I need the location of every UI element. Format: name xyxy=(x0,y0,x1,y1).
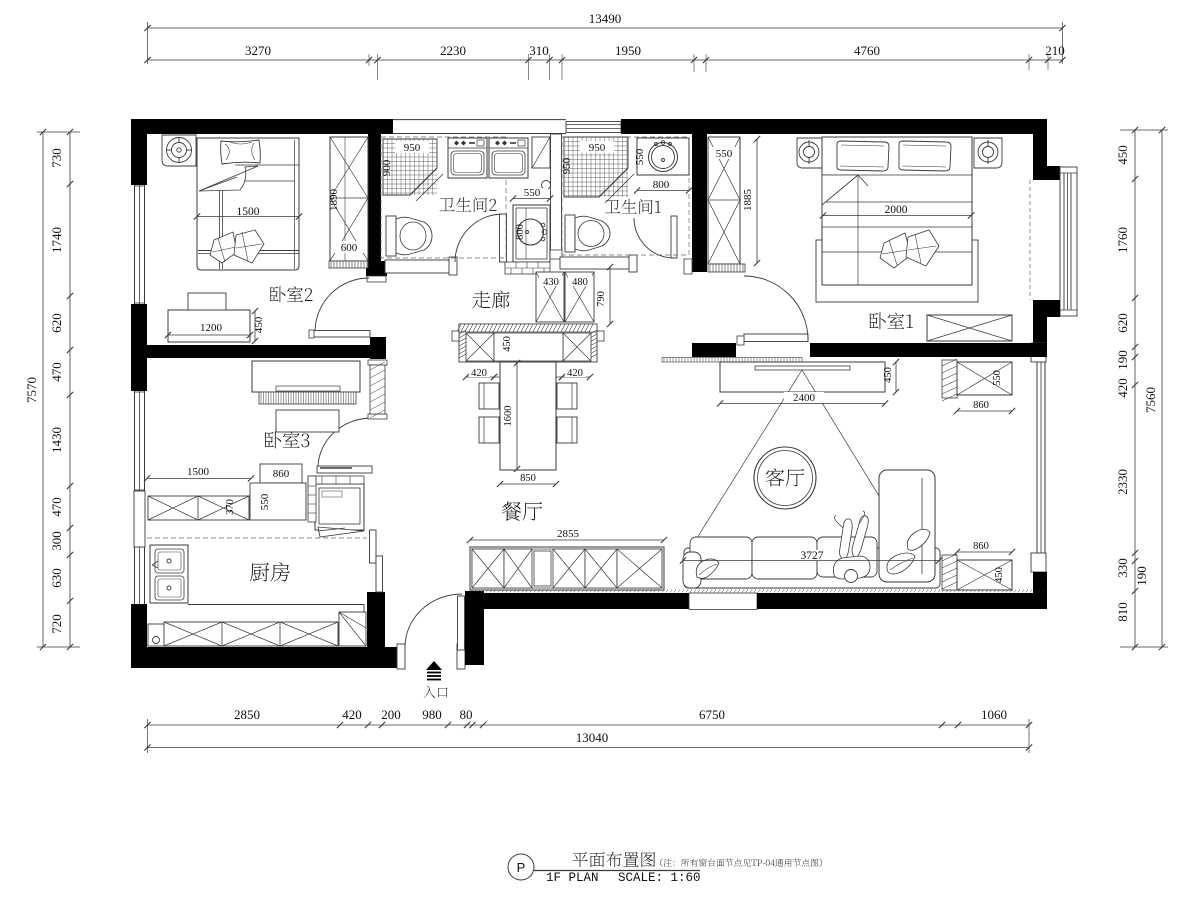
svg-text:600: 600 xyxy=(341,242,358,254)
svg-text:3270: 3270 xyxy=(245,43,271,58)
svg-text:1060: 1060 xyxy=(981,707,1007,722)
svg-text:2400: 2400 xyxy=(793,392,816,404)
svg-text:1890: 1890 xyxy=(328,189,340,212)
svg-text:1600: 1600 xyxy=(503,406,514,427)
svg-text:1740: 1740 xyxy=(49,227,64,253)
svg-text:980: 980 xyxy=(422,707,442,722)
svg-text:550: 550 xyxy=(716,148,733,160)
svg-text:1500: 1500 xyxy=(187,466,210,478)
svg-text:P: P xyxy=(517,860,526,875)
svg-text:13490: 13490 xyxy=(589,11,622,26)
svg-text:620: 620 xyxy=(49,313,64,333)
svg-text:190: 190 xyxy=(1115,350,1130,370)
svg-text:80: 80 xyxy=(460,707,473,722)
svg-text:310: 310 xyxy=(529,43,549,58)
svg-text:370: 370 xyxy=(225,499,236,515)
svg-text:800: 800 xyxy=(653,179,670,191)
svg-text:2850: 2850 xyxy=(234,707,260,722)
svg-text:950: 950 xyxy=(561,157,573,174)
svg-text:420: 420 xyxy=(471,368,487,379)
svg-text:4760: 4760 xyxy=(854,43,880,58)
svg-text:450: 450 xyxy=(994,567,1005,583)
svg-text:13040: 13040 xyxy=(576,730,609,745)
svg-text:1885: 1885 xyxy=(742,189,754,212)
svg-text:550: 550 xyxy=(259,493,271,510)
svg-text:620: 620 xyxy=(1115,313,1130,333)
svg-text:470: 470 xyxy=(49,362,64,382)
svg-text:860: 860 xyxy=(973,400,989,411)
svg-text:7560: 7560 xyxy=(1143,387,1158,413)
svg-text:800: 800 xyxy=(515,224,526,240)
svg-text:330: 330 xyxy=(1115,558,1130,578)
svg-text:420: 420 xyxy=(342,707,362,722)
svg-text:2855: 2855 xyxy=(557,528,580,540)
svg-text:730: 730 xyxy=(49,148,64,168)
svg-text:200: 200 xyxy=(381,707,401,722)
svg-text:2330: 2330 xyxy=(1115,469,1130,495)
svg-text:300: 300 xyxy=(49,531,64,551)
svg-text:550: 550 xyxy=(524,187,541,199)
svg-text:950: 950 xyxy=(404,142,421,154)
svg-text:1F PLAN: 1F PLAN xyxy=(546,871,599,885)
svg-text:1950: 1950 xyxy=(615,43,641,58)
svg-text:7570: 7570 xyxy=(24,377,39,403)
svg-text:550: 550 xyxy=(992,370,1003,386)
svg-text:720: 720 xyxy=(49,614,64,634)
svg-text:SCALE: 1:60: SCALE: 1:60 xyxy=(618,871,701,885)
svg-text:860: 860 xyxy=(273,468,290,480)
svg-text:450: 450 xyxy=(1115,145,1130,165)
svg-text:420: 420 xyxy=(1115,378,1130,398)
svg-text:6750: 6750 xyxy=(699,707,725,722)
svg-text:2230: 2230 xyxy=(440,43,466,58)
svg-text:790: 790 xyxy=(596,291,607,307)
svg-text:430: 430 xyxy=(543,277,559,288)
svg-text:470: 470 xyxy=(49,497,64,517)
svg-text:2000: 2000 xyxy=(885,204,908,216)
svg-text:1200: 1200 xyxy=(200,322,223,334)
svg-text:420: 420 xyxy=(567,368,583,379)
svg-text:1430: 1430 xyxy=(49,427,64,453)
svg-text:950: 950 xyxy=(589,142,606,154)
svg-text:850: 850 xyxy=(520,473,536,484)
svg-text:190: 190 xyxy=(1134,566,1149,586)
svg-text:450: 450 xyxy=(502,336,513,352)
svg-text:1760: 1760 xyxy=(1115,227,1130,253)
svg-text:810: 810 xyxy=(1115,602,1130,622)
svg-text:450: 450 xyxy=(883,367,894,383)
svg-text:630: 630 xyxy=(49,568,64,588)
svg-text:480: 480 xyxy=(572,277,588,288)
svg-text:550: 550 xyxy=(634,148,646,165)
svg-text:900: 900 xyxy=(381,159,393,176)
svg-text:860: 860 xyxy=(973,541,989,552)
